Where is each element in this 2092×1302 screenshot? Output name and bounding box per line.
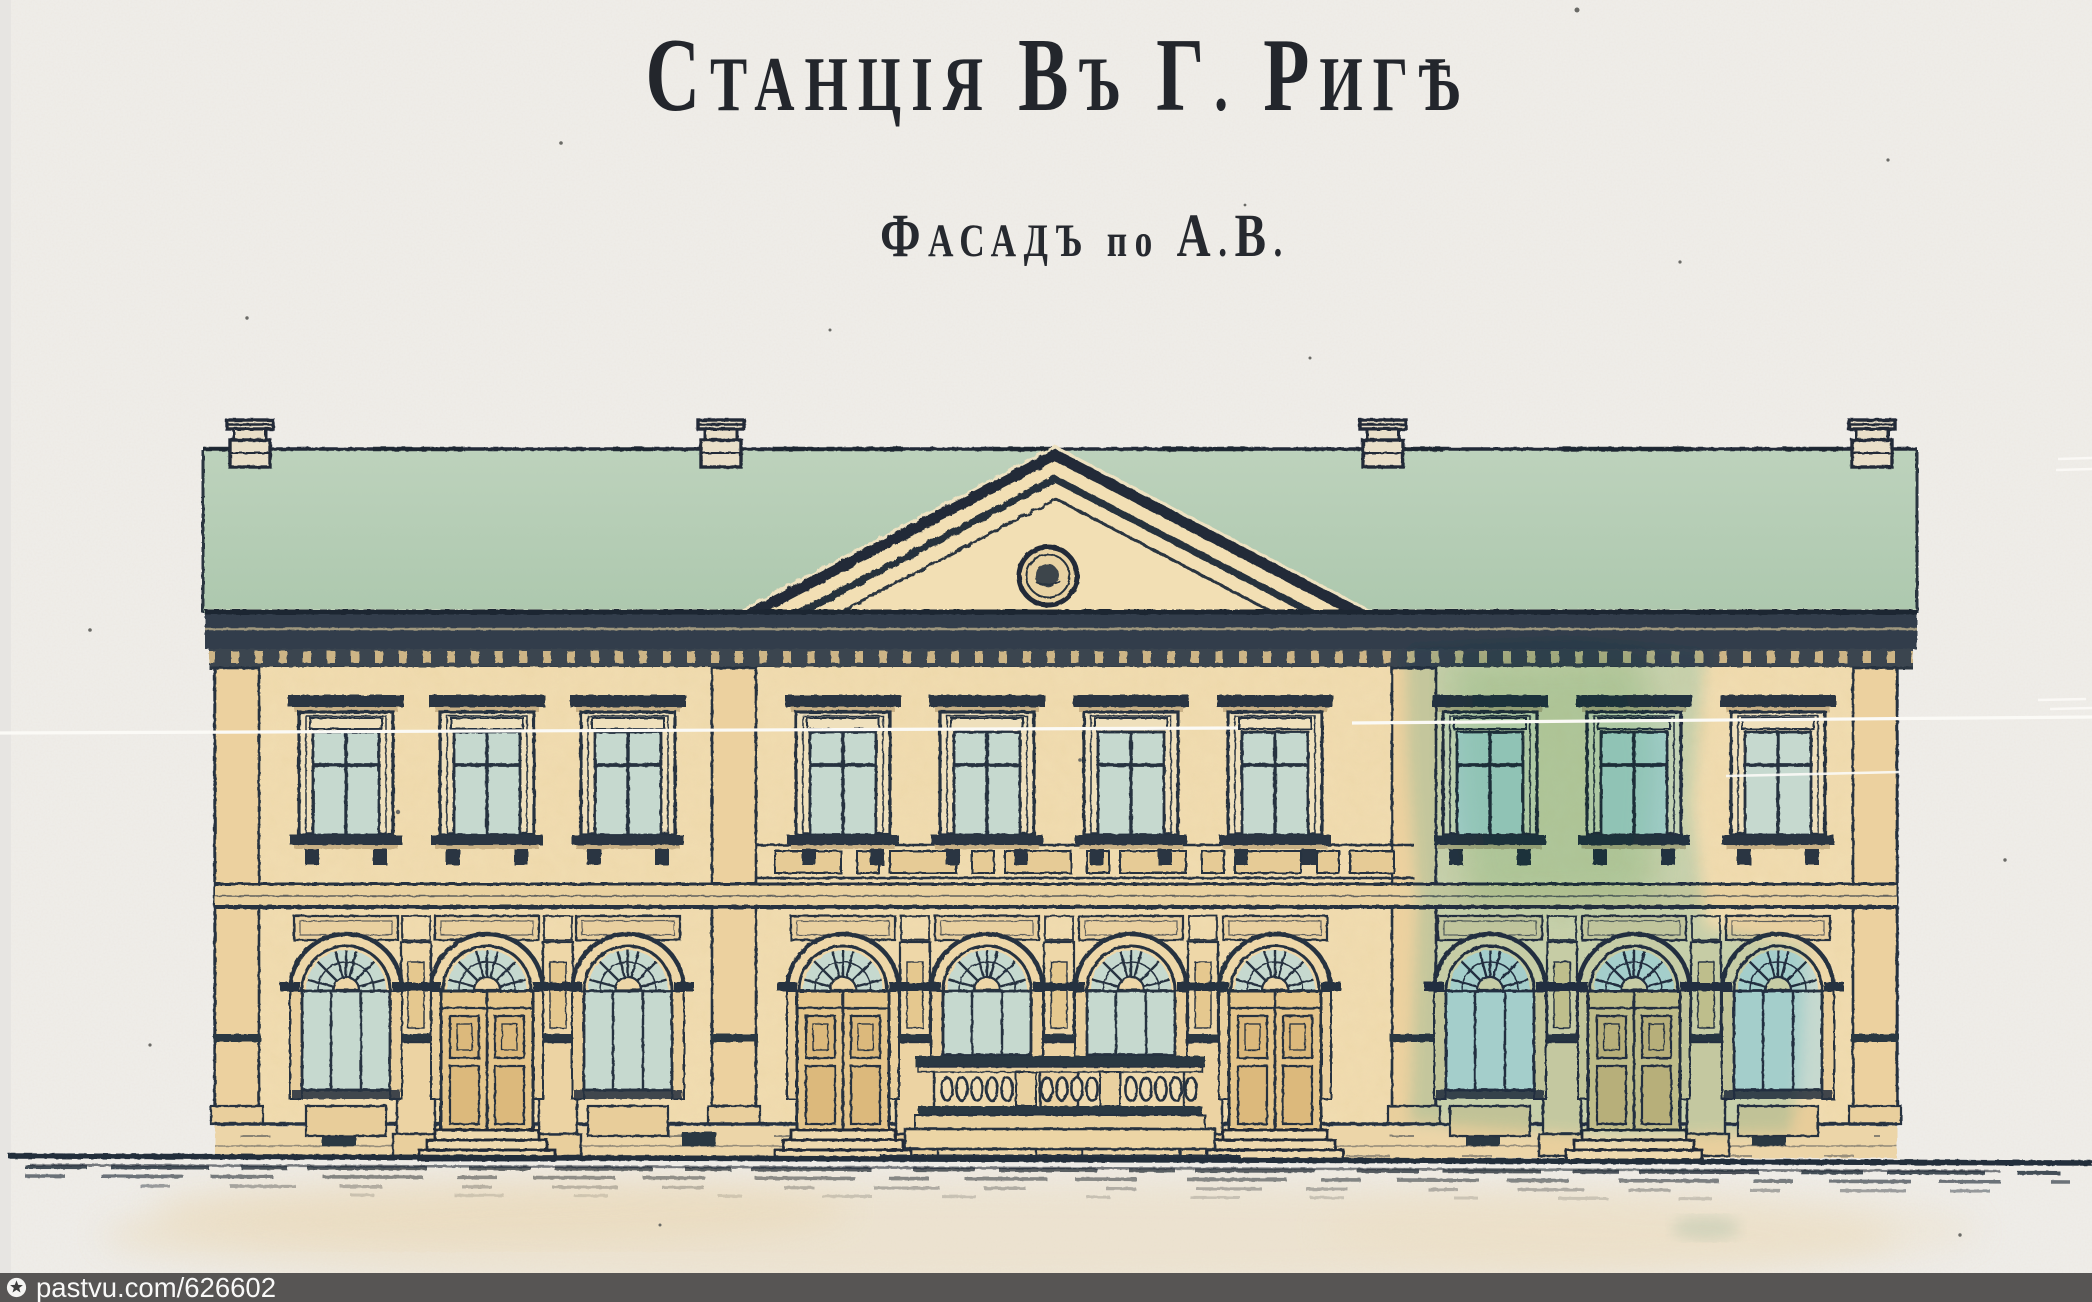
svg-text:pastvu.com/626602: pastvu.com/626602 <box>36 1272 276 1302</box>
